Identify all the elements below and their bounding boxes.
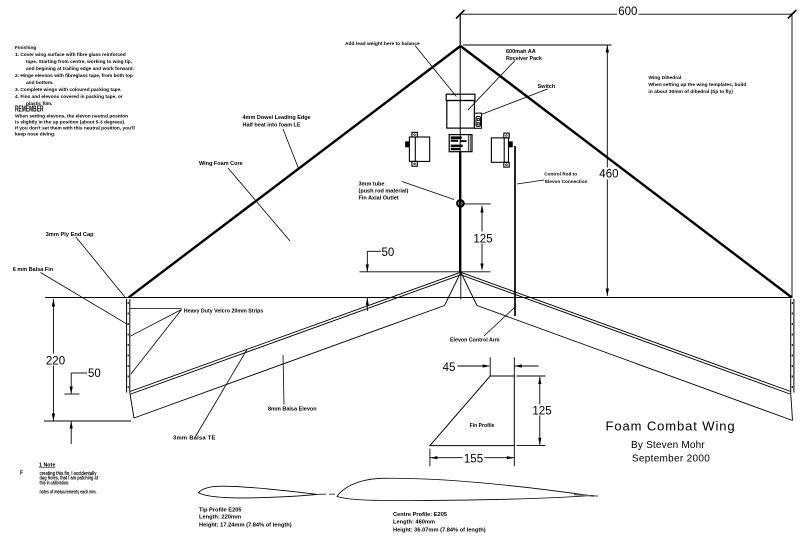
svg-text:in about 30mm of dihedral (tip: in about 30mm of dihedral (tip to fly) — [648, 89, 733, 95]
svg-text:Control Rod to: Control Rod to — [544, 172, 577, 177]
svg-text:Receiver Pack: Receiver Pack — [506, 56, 542, 62]
svg-text:Centre Profile: E205: Centre Profile: E205 — [393, 512, 447, 518]
svg-text:3. Complete wings with coloure: 3. Complete wings with coloured packing … — [15, 87, 122, 93]
svg-text:Elevon Connection: Elevon Connection — [545, 179, 588, 184]
svg-text:When setting up the wing templ: When setting up the wing templates, buil… — [648, 82, 746, 88]
svg-text:Tip Profile E205: Tip Profile E205 — [199, 508, 242, 514]
svg-text:tape. Starting from centre, wo: tape. Starting from centre, working to w… — [26, 59, 133, 65]
svg-text:By Steven Mohr: By Steven Mohr — [631, 440, 705, 451]
svg-text:3mm Ply End Cap: 3mm Ply End Cap — [46, 232, 95, 238]
svg-text:8mm Balsa Elevon: 8mm Balsa Elevon — [268, 407, 317, 413]
svg-text:and bottom.: and bottom. — [26, 80, 53, 86]
svg-text:Fin Profile: Fin Profile — [470, 423, 495, 429]
svg-text:If you don't set them with thi: If you don't set them with this neutral … — [15, 126, 135, 132]
svg-text:2. Hinge elevons with fibregla: 2. Hinge elevons with fibreglass tape, f… — [15, 73, 133, 79]
svg-text:Height: 36.07mm (7.84% of leng: Height: 36.07mm (7.84% of length) — [393, 528, 486, 534]
svg-text:50: 50 — [88, 368, 101, 380]
svg-text:3mm Balsa TE: 3mm Balsa TE — [173, 436, 216, 442]
svg-text:Add lead weight here to balanc: Add lead weight here to balance — [345, 41, 420, 47]
svg-text:50: 50 — [382, 247, 395, 259]
svg-text:125: 125 — [532, 406, 551, 418]
svg-text:(push rod material): (push rod material) — [359, 189, 409, 195]
svg-text:F: F — [20, 471, 23, 477]
svg-text:keep nose diving.: keep nose diving. — [15, 132, 55, 138]
svg-text:September 2000: September 2000 — [632, 453, 710, 464]
svg-text:this in calibration.: this in calibration. — [40, 481, 70, 487]
svg-text:Height: 17.24mm (7.84% of leng: Height: 17.24mm (7.84% of length) — [199, 523, 292, 529]
svg-text:3mm tube: 3mm tube — [359, 182, 385, 188]
svg-text:When setting elevons, the elev: When setting elevons, the elevon neutral… — [15, 114, 128, 120]
svg-text:REMEMBER: REMEMBER — [15, 104, 44, 113]
svg-text:is slightly in the up position: is slightly in the up position (about 5-… — [15, 120, 125, 126]
svg-text:Wing Foam Core: Wing Foam Core — [199, 161, 243, 167]
svg-text:Heavy Duty Velcro 20mm Strips: Heavy Duty Velcro 20mm Strips — [184, 309, 264, 315]
svg-text:220: 220 — [46, 356, 65, 368]
svg-text:Length: 460mm: Length: 460mm — [393, 520, 435, 526]
svg-text:600mah AA: 600mah AA — [506, 49, 536, 55]
svg-text:6 mm Balsa Fin: 6 mm Balsa Fin — [13, 267, 54, 273]
svg-text:Wing Dihedral: Wing Dihedral — [648, 75, 681, 81]
svg-text:and begining at trailing edge: and begining at trailing edge and work f… — [26, 66, 134, 72]
svg-text:Length: 220mm: Length: 220mm — [199, 515, 241, 521]
svg-text:600: 600 — [618, 6, 637, 18]
svg-text:45: 45 — [443, 362, 456, 374]
svg-text:Half heat into foam LE: Half heat into foam LE — [243, 123, 301, 129]
svg-text:125: 125 — [473, 234, 492, 246]
svg-text:Fin Axial Outlet: Fin Axial Outlet — [359, 196, 399, 202]
svg-text:Finishing: Finishing — [15, 45, 36, 51]
svg-text:4. Fins and elevons covered in: 4. Fins and elevons covered in packing t… — [15, 94, 123, 100]
svg-text:Foam Combat Wing: Foam Combat Wing — [606, 419, 736, 434]
svg-text:1 Note: 1 Note — [39, 463, 56, 469]
svg-text:4mm Dowel Leading Edge: 4mm Dowel Leading Edge — [243, 115, 311, 121]
svg-text:460: 460 — [599, 168, 618, 180]
svg-text:155: 155 — [464, 453, 483, 465]
svg-text:1. Cover wing surface with fib: 1. Cover wing surface with fibre glass r… — [15, 52, 126, 58]
svg-text:Elevon Control Arm: Elevon Control Arm — [450, 338, 500, 344]
svg-text:notes of measurements each mm.: notes of measurements each mm. — [40, 490, 97, 496]
